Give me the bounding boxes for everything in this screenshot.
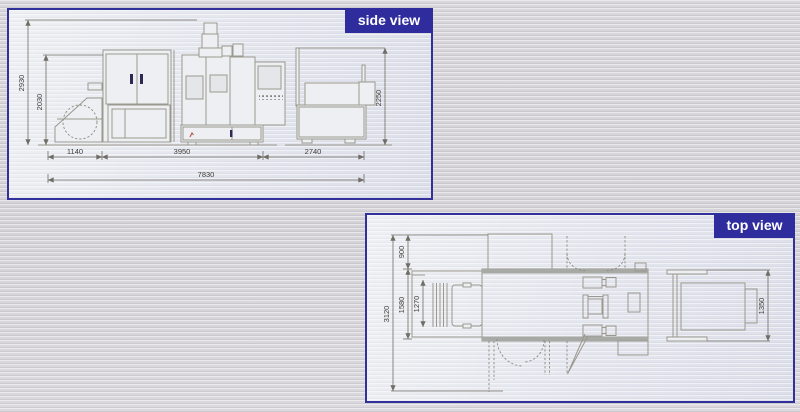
top-view-label: top view xyxy=(714,213,795,238)
cabinet-bracket xyxy=(88,83,102,90)
dim-right-width: 2740 xyxy=(305,147,322,156)
hopper-tower xyxy=(199,23,243,57)
dim-right-unit-height: 2250 xyxy=(374,90,383,107)
control-console xyxy=(255,62,285,125)
scanned-brochure-page: 2930 2030 2250 1140 3950 2740 7830 side … xyxy=(0,0,800,412)
side-view-drawing: 2930 2030 2250 1140 3950 2740 7830 xyxy=(9,10,431,198)
left-unit-top xyxy=(412,271,482,337)
rear-auxiliary-box xyxy=(488,234,552,271)
console-screen xyxy=(258,66,281,89)
dim-cabinet-height: 2030 xyxy=(35,94,44,111)
door-swings xyxy=(489,236,625,392)
machine-window xyxy=(186,76,203,99)
dim-body-depth: 1580 xyxy=(397,297,406,314)
clamp-top xyxy=(583,277,616,288)
dim-left-width: 1140 xyxy=(67,147,83,156)
dim-total-height: 2930 xyxy=(17,75,26,92)
clamp-bottom xyxy=(583,325,616,336)
main-body-top xyxy=(482,263,648,355)
dim-total-depth: 3120 xyxy=(382,306,391,323)
dim-inner-depth: 1270 xyxy=(412,296,421,313)
body-bottom-rail xyxy=(482,337,648,342)
vent-panel xyxy=(108,105,170,142)
body-top-rail xyxy=(482,269,648,274)
side-box xyxy=(628,293,640,312)
right-auxiliary-unit xyxy=(296,48,385,143)
top-view-panel: 3120 900 1580 1270 1350 top view xyxy=(365,213,795,403)
platen xyxy=(452,285,482,326)
side-view-label: side view xyxy=(345,8,433,33)
door-handle xyxy=(140,74,143,84)
dim-right-unit-depth: 1350 xyxy=(757,298,766,315)
dim-rear-depth: 900 xyxy=(397,246,406,259)
top-view-drawing: 3120 900 1580 1270 1350 xyxy=(367,215,793,397)
internal-fixtures xyxy=(583,277,640,336)
dim-center-width: 3950 xyxy=(174,147,191,156)
machine-window xyxy=(210,75,227,92)
base-handle xyxy=(230,130,233,137)
chip-conveyor-unit xyxy=(55,98,102,142)
center-fixture xyxy=(583,295,608,318)
base-cabinet xyxy=(181,125,263,145)
door-handle xyxy=(130,74,133,84)
right-unit-top xyxy=(667,270,757,341)
dim-total-width: 7830 xyxy=(198,170,215,179)
side-view-panel: 2930 2030 2250 1140 3950 2740 7830 side … xyxy=(7,8,433,200)
console-buttons xyxy=(259,93,283,100)
